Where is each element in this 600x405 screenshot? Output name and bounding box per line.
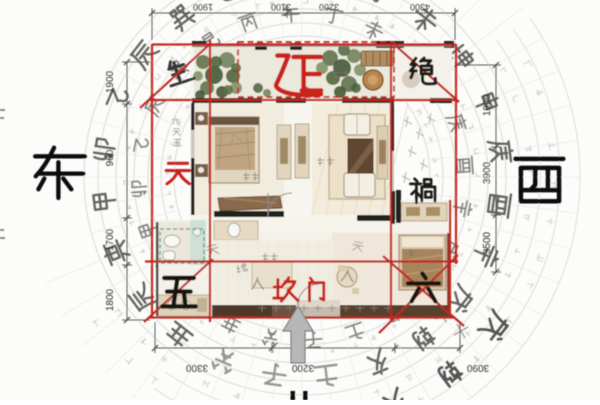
svg-text:3300: 3300 (185, 362, 208, 373)
svg-text:1900: 1900 (482, 93, 493, 116)
svg-text:1900: 1900 (193, 2, 213, 12)
svg-text:1800: 1800 (105, 288, 116, 311)
svg-text:3090: 3090 (466, 362, 489, 373)
svg-text:3900: 3900 (482, 161, 493, 184)
svg-text:3100: 3100 (271, 2, 291, 12)
svg-text:1900: 1900 (105, 70, 116, 93)
svg-text:900: 900 (105, 149, 116, 166)
svg-text:3500: 3500 (482, 231, 493, 254)
svg-text:3200: 3200 (319, 2, 339, 12)
svg-text:3200: 3200 (291, 362, 314, 373)
svg-text:1700: 1700 (105, 228, 116, 251)
svg-text:4300: 4300 (410, 2, 430, 12)
